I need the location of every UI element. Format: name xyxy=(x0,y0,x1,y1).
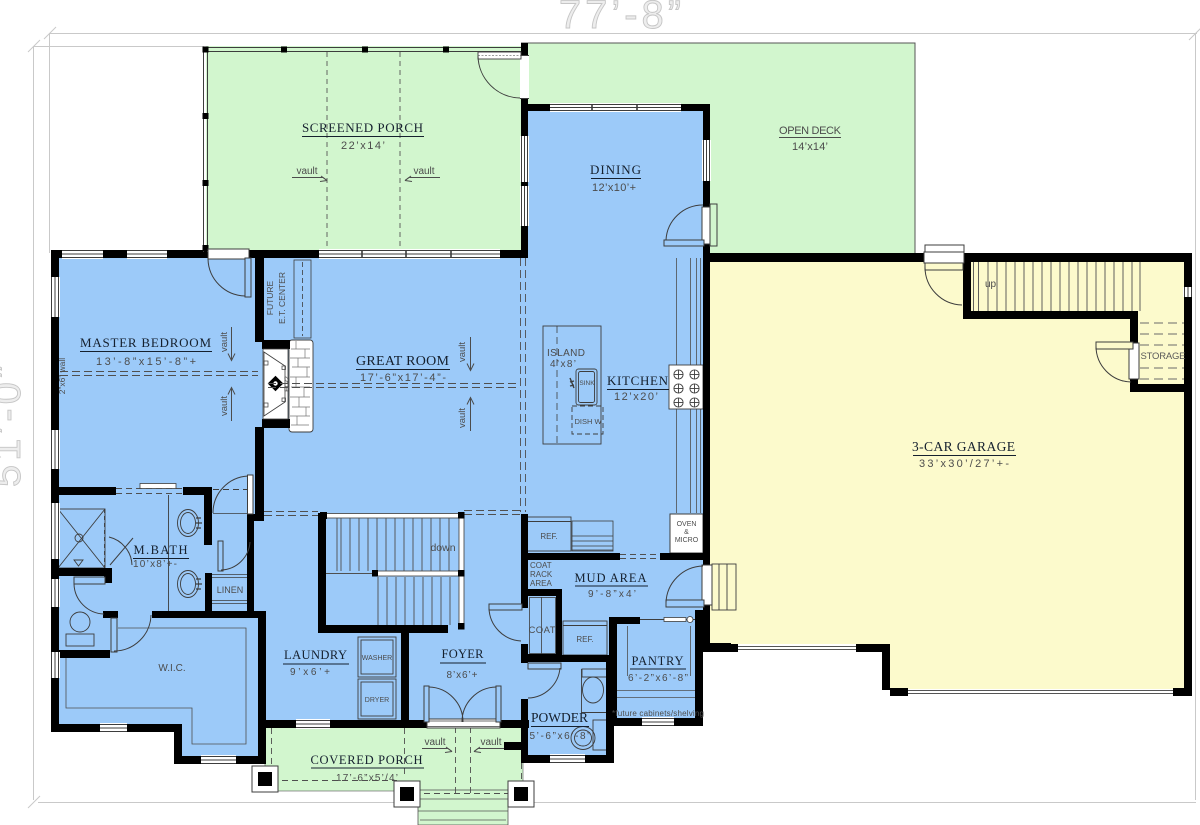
svg-text:COAT: COAT xyxy=(529,625,556,636)
svg-text:E.T. CENTER: E.T. CENTER xyxy=(277,272,287,324)
svg-text:RACK: RACK xyxy=(530,570,553,579)
svg-text:COAT: COAT xyxy=(530,561,552,570)
svg-text:&: & xyxy=(684,529,689,536)
svg-text:8’x6’+: 8’x6’+ xyxy=(447,670,478,681)
svg-text:6’-2”x6’-8”: 6’-2”x6’-8” xyxy=(628,673,688,684)
svg-text:MICRO: MICRO xyxy=(675,537,699,544)
svg-text:17’-6”x5’/4’: 17’-6”x5’/4’ xyxy=(336,773,398,784)
svg-text:DISH W: DISH W xyxy=(574,417,602,426)
svg-text:vault: vault xyxy=(457,342,468,362)
svg-text:10’x8’+-: 10’x8’+- xyxy=(133,559,177,570)
svg-text:ISLAND: ISLAND xyxy=(547,348,585,359)
svg-text:REF.: REF. xyxy=(540,532,557,541)
svg-text:PANTRY: PANTRY xyxy=(632,654,685,668)
svg-text:COVERED PORCH: COVERED PORCH xyxy=(311,753,424,767)
svg-text:M.BATH: M.BATH xyxy=(134,543,189,557)
svg-text:DRYER: DRYER xyxy=(365,697,389,704)
svg-text:vault: vault xyxy=(219,332,230,352)
svg-text:4’x8’: 4’x8’ xyxy=(550,359,576,370)
svg-text:77’-8”: 77’-8” xyxy=(559,0,685,37)
svg-text:SINK: SINK xyxy=(579,380,595,387)
svg-text:AREA: AREA xyxy=(530,579,552,588)
svg-text:33’x30’/27’+-: 33’x30’/27’+- xyxy=(919,458,1009,470)
svg-text:vault: vault xyxy=(296,166,317,177)
svg-text:SCREENED PORCH: SCREENED PORCH xyxy=(302,120,424,135)
svg-text:*future cabinets/shelving: *future cabinets/shelving xyxy=(612,709,704,718)
svg-text:14’x14’: 14’x14’ xyxy=(792,141,828,153)
svg-text:POWDER: POWDER xyxy=(531,710,589,725)
svg-text:5’-6”x6’-8”: 5’-6”x6’-8” xyxy=(530,731,591,742)
svg-text:MUD AREA: MUD AREA xyxy=(575,571,648,585)
svg-text:MASTER BEDROOM: MASTER BEDROOM xyxy=(80,335,212,350)
svg-text:OPEN DECK: OPEN DECK xyxy=(779,125,842,137)
svg-text:STORAGE: STORAGE xyxy=(1141,351,1186,362)
svg-text:up: up xyxy=(985,279,997,290)
svg-text:REF.: REF. xyxy=(576,635,593,644)
svg-text:3-CAR GARAGE: 3-CAR GARAGE xyxy=(912,439,1016,454)
svg-text:vault: vault xyxy=(413,166,434,177)
svg-text:vault: vault xyxy=(457,408,468,428)
svg-text:down: down xyxy=(430,542,455,554)
svg-text:vault: vault xyxy=(424,737,445,748)
svg-text:LINEN: LINEN xyxy=(217,585,244,595)
svg-text:vault: vault xyxy=(480,737,501,748)
svg-text:LAUNDRY: LAUNDRY xyxy=(284,648,348,662)
svg-text:OVEN: OVEN xyxy=(677,521,697,528)
svg-text:DINING: DINING xyxy=(590,162,642,177)
svg-text:WASHER: WASHER xyxy=(362,655,392,662)
svg-text:2”x6” wall: 2”x6” wall xyxy=(57,358,67,394)
svg-text:vault: vault xyxy=(219,396,230,416)
svg-text:12’x10’+: 12’x10’+ xyxy=(592,182,636,194)
svg-text:GREAT ROOM: GREAT ROOM xyxy=(356,354,450,369)
svg-text:51’-0”: 51’-0” xyxy=(0,361,29,487)
svg-text:W.I.C.: W.I.C. xyxy=(158,663,185,674)
svg-text:FUTURE: FUTURE xyxy=(265,280,275,315)
svg-text:FOYER: FOYER xyxy=(442,647,485,661)
svg-text:KITCHEN: KITCHEN xyxy=(607,373,669,388)
